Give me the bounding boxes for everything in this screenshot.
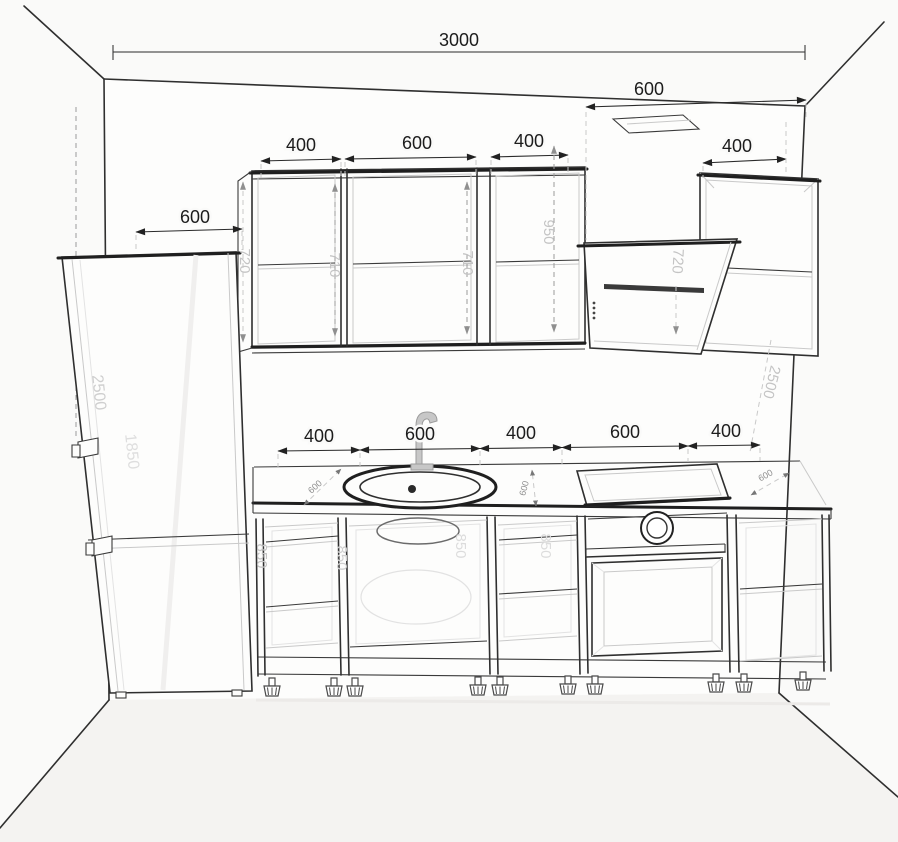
dim-upper-1: 400 [286,135,316,155]
dim-hood-zone: 600 [634,79,664,99]
sink-drain [408,485,416,493]
dim-base-1: 400 [304,426,334,446]
dim-right-wall-cab: 400 [722,136,752,156]
refrigerator [58,252,252,698]
dim-wall-width: 3000 [439,30,479,50]
dim-base-3: 400 [506,423,536,443]
dim-upper-2: 600 [402,133,432,153]
dim-fridge-zone: 600 [180,207,210,227]
fridge-handle-bottom [86,536,112,556]
oven-knob [641,512,673,544]
dim-wall-cab-inner-2: 710 [459,250,476,275]
dim-wall-cab-height: 720 [236,248,253,273]
dim-base-height-3: 850 [452,533,469,558]
ceiling-corner-left [24,6,104,79]
fridge-foot [232,690,242,696]
fridge-foot [116,692,126,698]
dim-hood-clearance: 950 [540,219,557,244]
dim-base-height-1: 850 [253,543,270,568]
dim-base-2: 600 [405,424,435,444]
dim-upper-3: 400 [514,131,544,151]
dim-base-height-2: 850 [333,545,350,570]
kitchen-elevation-drawing: 3000 600 400 600 400 400 600 400 600 400… [0,0,898,842]
fridge-handle-top [72,438,98,458]
floor [0,693,898,842]
dim-base-height-4: 850 [537,533,554,558]
dim-base-5: 400 [711,421,741,441]
ceiling-corner-right [805,22,884,106]
dim-wall-cab-inner-1: 710 [326,252,343,277]
sink [344,466,496,508]
dim-hood-height: 720 [668,248,686,274]
dim-base-4: 600 [610,422,640,442]
cooktop [577,464,730,506]
wall-cabinet-row [238,167,587,353]
